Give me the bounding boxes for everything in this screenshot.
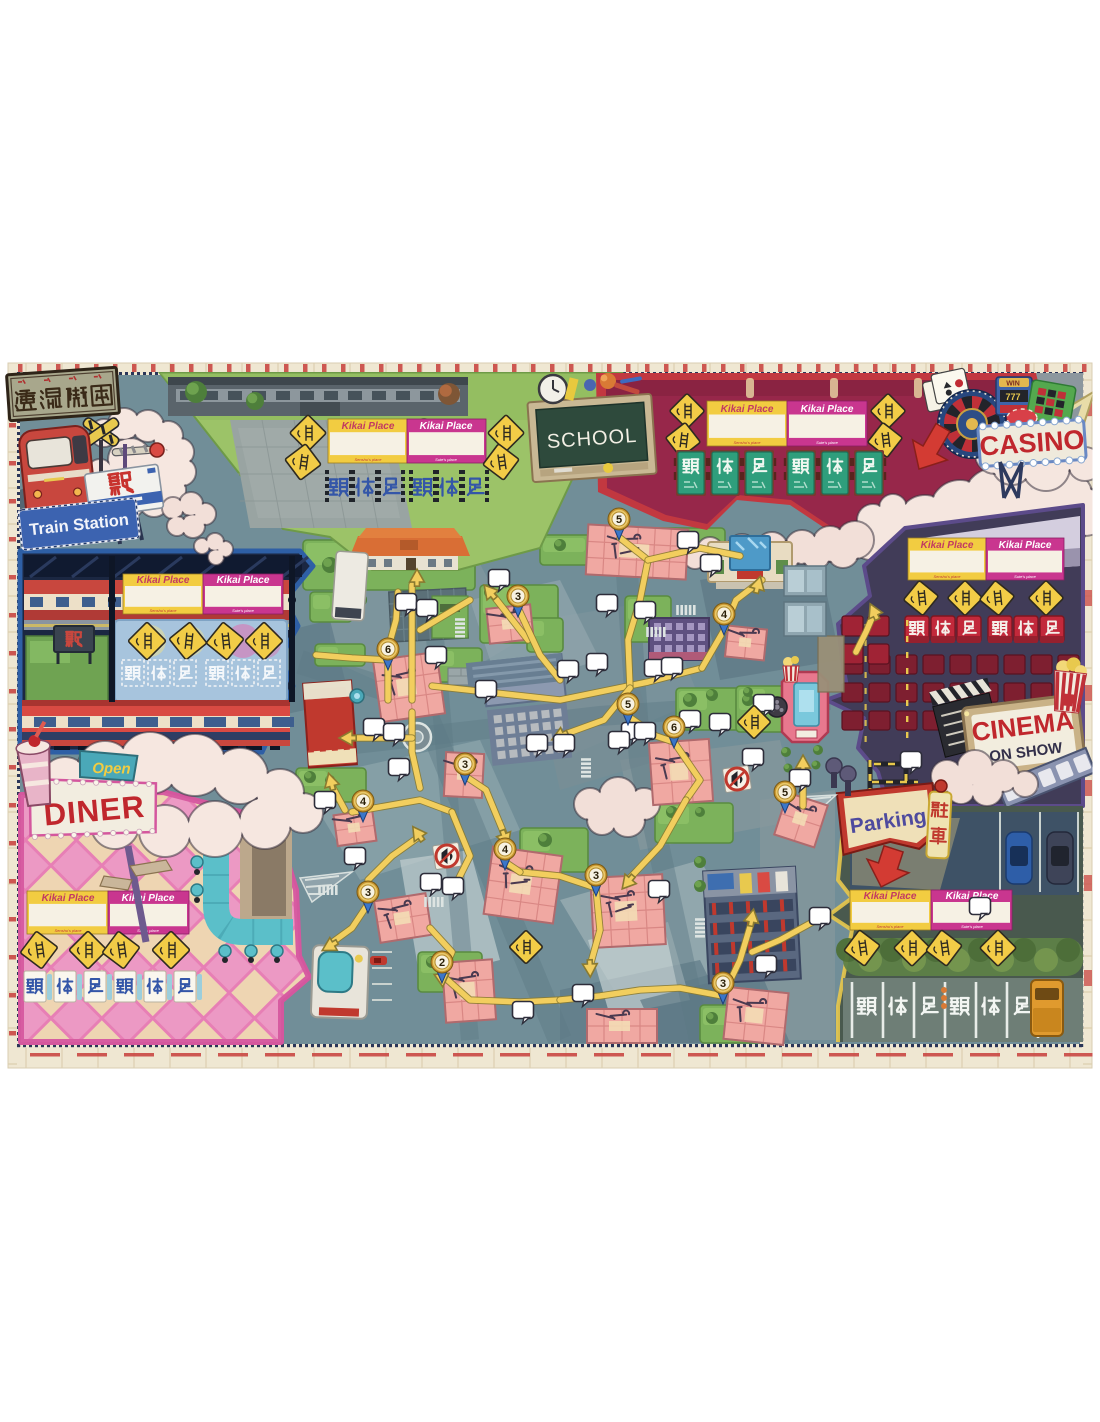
svg-text:5: 5 — [616, 514, 622, 526]
svg-text:Senshu's place: Senshu's place — [54, 928, 82, 933]
svg-text:Sute's place: Sute's place — [435, 457, 457, 462]
svg-text:Senshu's place: Senshu's place — [876, 924, 904, 929]
svg-text:Senshu's place: Senshu's place — [733, 440, 761, 445]
svg-text:Senshu's place: Senshu's place — [354, 457, 382, 462]
svg-text:Senshu's place: Senshu's place — [149, 608, 177, 613]
svg-text:Kikai Place: Kikai Place — [217, 575, 270, 586]
svg-text:Sute's place: Sute's place — [961, 924, 983, 929]
svg-text:5: 5 — [782, 787, 788, 799]
svg-text:Sute's place: Sute's place — [232, 608, 254, 613]
svg-text:Kikai Place: Kikai Place — [864, 891, 917, 902]
svg-text:6: 6 — [385, 644, 391, 656]
svg-text:4: 4 — [721, 609, 728, 621]
svg-text:2: 2 — [439, 957, 445, 969]
svg-text:Sute's place: Sute's place — [1014, 574, 1036, 579]
svg-text:Kikai Place: Kikai Place — [921, 540, 974, 551]
svg-text:4: 4 — [502, 844, 509, 856]
svg-text:3: 3 — [515, 591, 521, 603]
svg-text:Open: Open — [92, 760, 131, 778]
svg-text:3: 3 — [593, 870, 599, 882]
svg-text:Kikai Place: Kikai Place — [420, 421, 473, 432]
svg-text:Kikai Place: Kikai Place — [801, 404, 854, 415]
svg-text:Kikai Place: Kikai Place — [999, 540, 1052, 551]
svg-text:3: 3 — [720, 978, 726, 990]
svg-text:Kikai Place: Kikai Place — [42, 893, 95, 904]
svg-text:Senshu's place: Senshu's place — [933, 574, 961, 579]
svg-text:Kikai Place: Kikai Place — [122, 893, 175, 904]
svg-text:Kikai Place: Kikai Place — [137, 575, 190, 586]
svg-text:3: 3 — [462, 759, 468, 771]
svg-text:WIN: WIN — [1006, 381, 1020, 388]
svg-text:4: 4 — [360, 796, 367, 808]
svg-text:Kikai Place: Kikai Place — [721, 404, 774, 415]
svg-text:6: 6 — [671, 722, 677, 734]
svg-text:5: 5 — [625, 699, 631, 711]
svg-text:3: 3 — [365, 887, 371, 899]
svg-text:Kikai Place: Kikai Place — [342, 421, 395, 432]
svg-text:777: 777 — [1005, 392, 1020, 402]
svg-text:Sute's place: Sute's place — [816, 440, 838, 445]
